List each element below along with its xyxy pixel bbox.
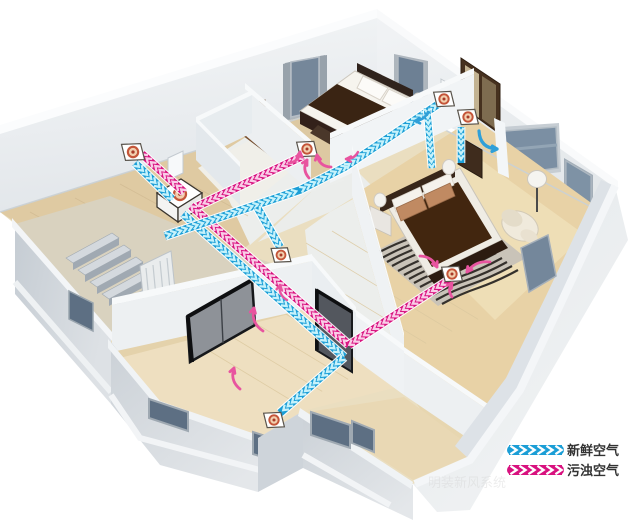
svg-text:明装新风系统: 明装新风系统 bbox=[428, 475, 506, 490]
svg-text:污浊空气: 污浊空气 bbox=[567, 463, 619, 478]
svg-text:新鲜空气: 新鲜空气 bbox=[567, 443, 619, 458]
